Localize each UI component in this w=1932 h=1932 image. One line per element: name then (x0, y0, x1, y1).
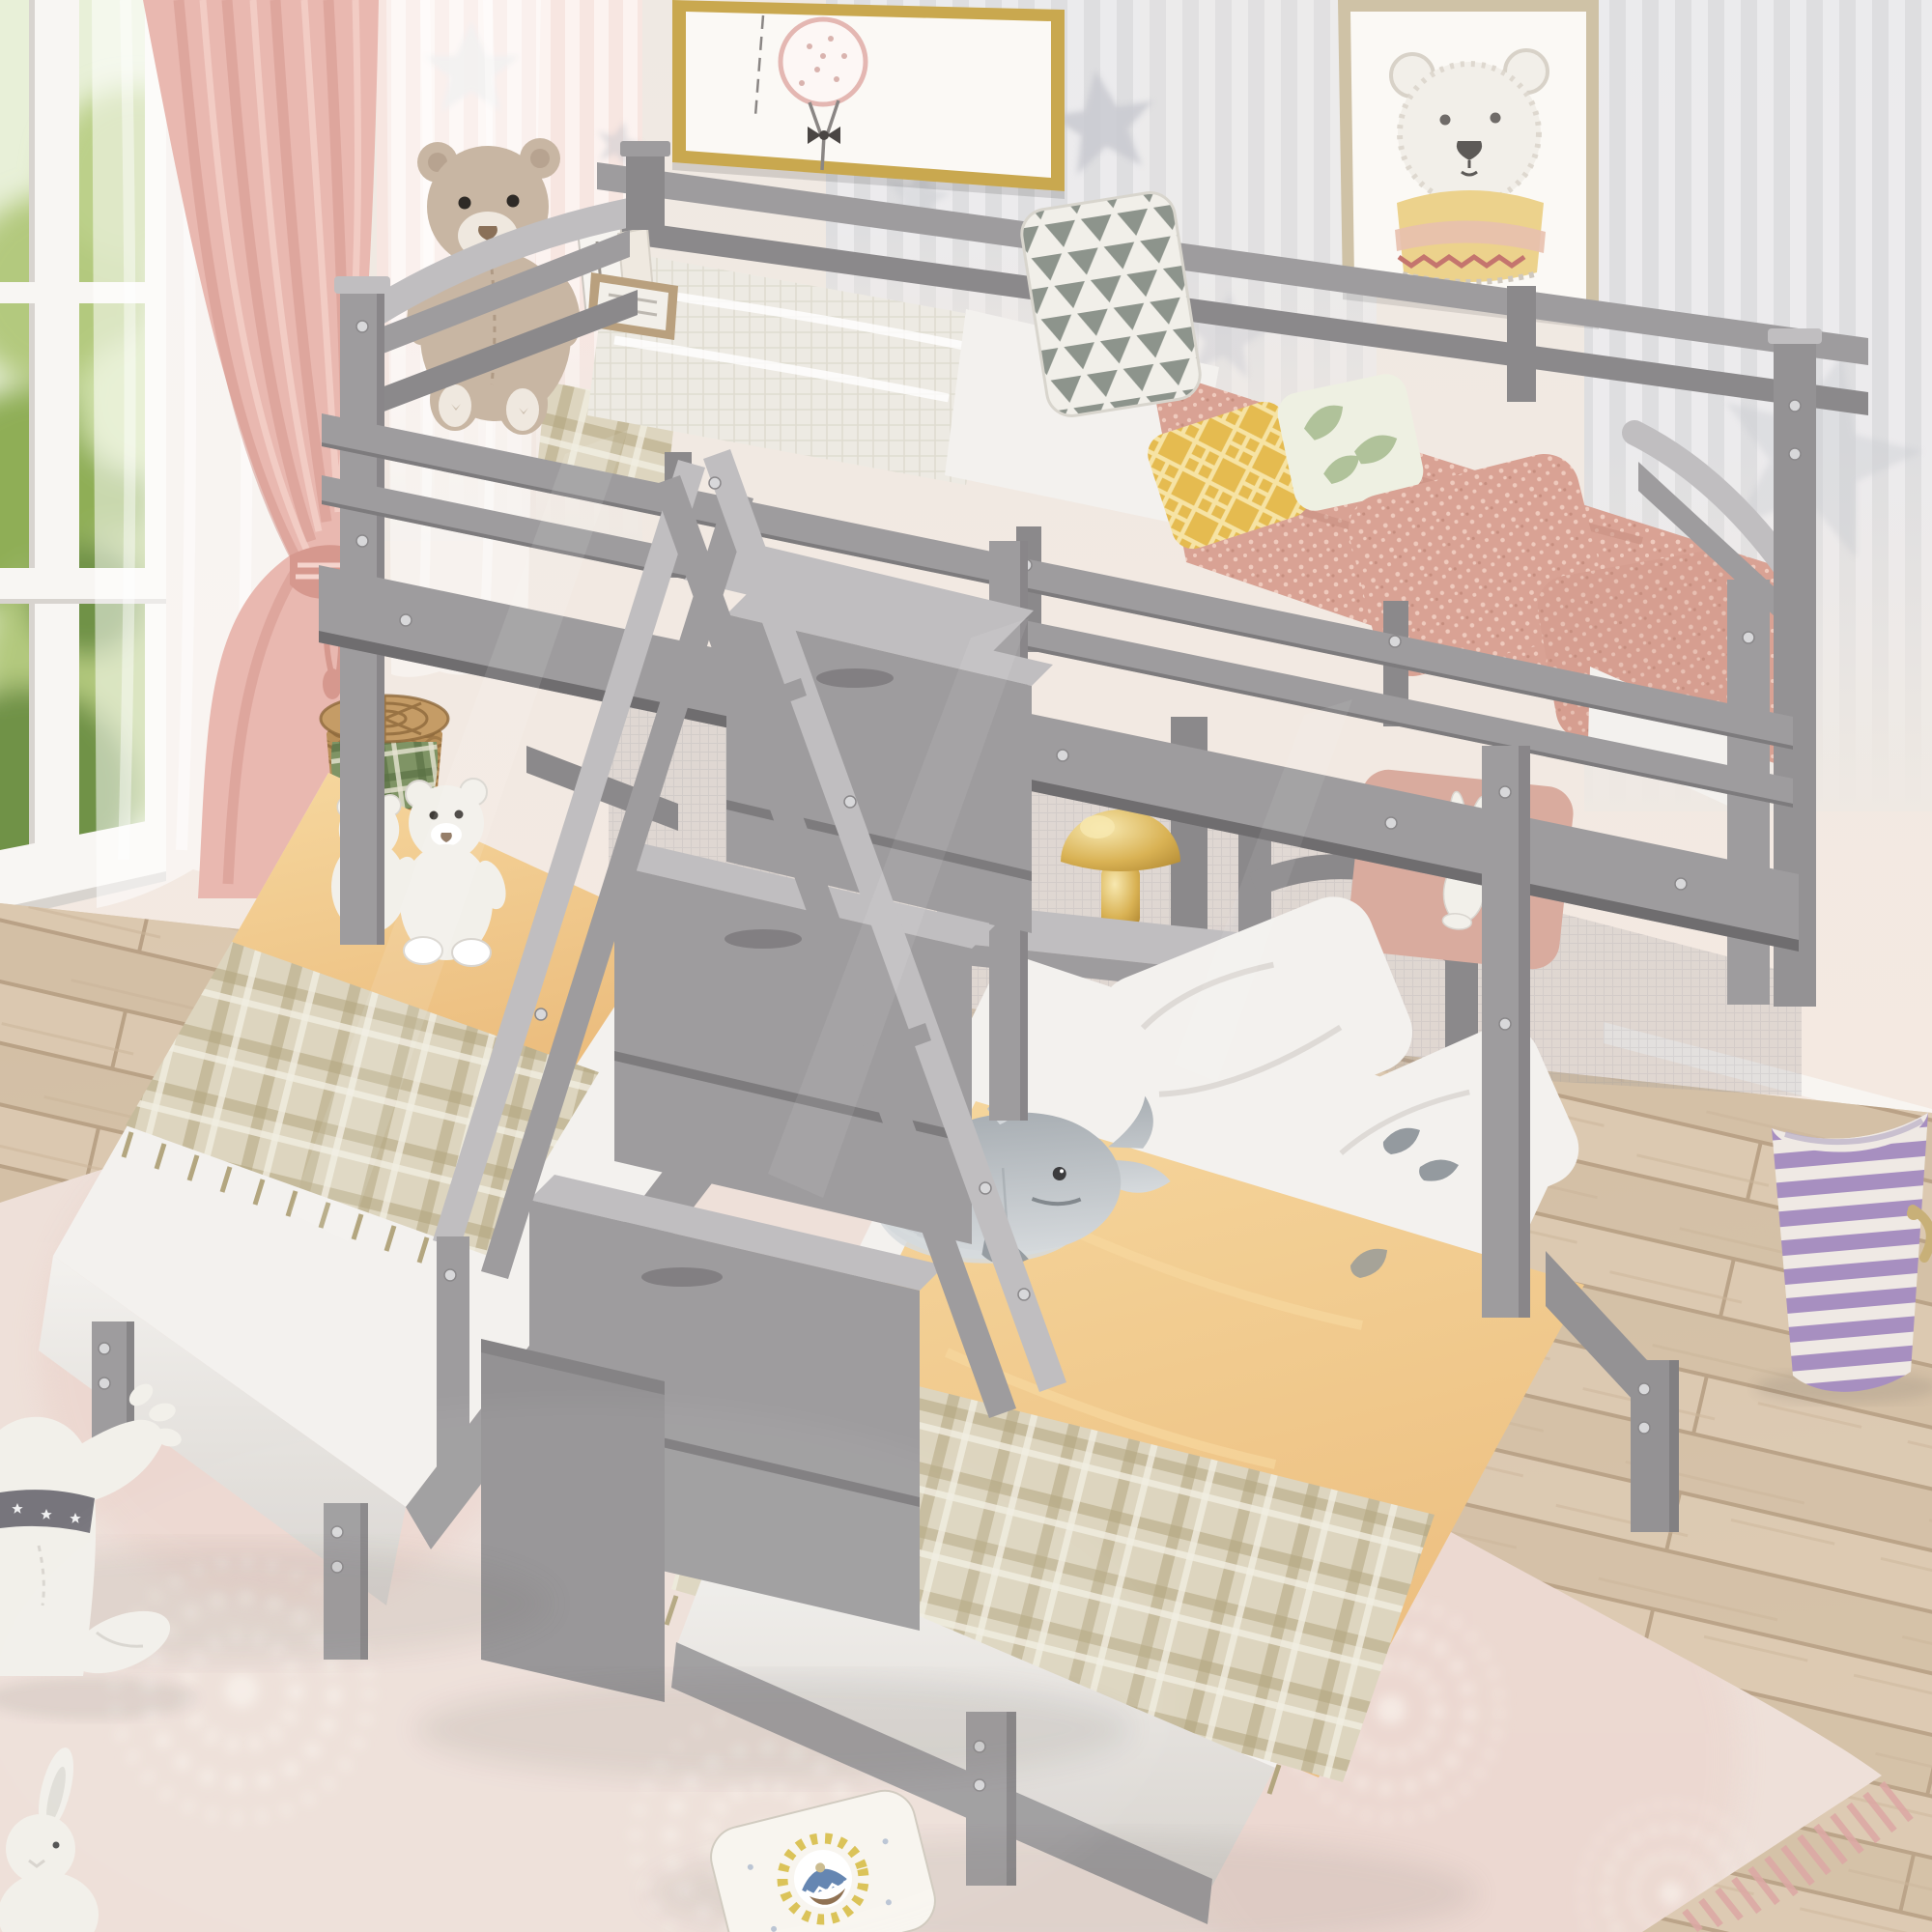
scene-canvas (0, 0, 1932, 1932)
bear-art (1391, 50, 1548, 282)
loft-post-right-mid (1482, 746, 1530, 1318)
bedroom-photo (0, 0, 1932, 1932)
laundry-basket (1772, 1113, 1931, 1392)
triangle-pillow (1018, 189, 1204, 419)
framed-balloon-sketch (672, 0, 1065, 199)
